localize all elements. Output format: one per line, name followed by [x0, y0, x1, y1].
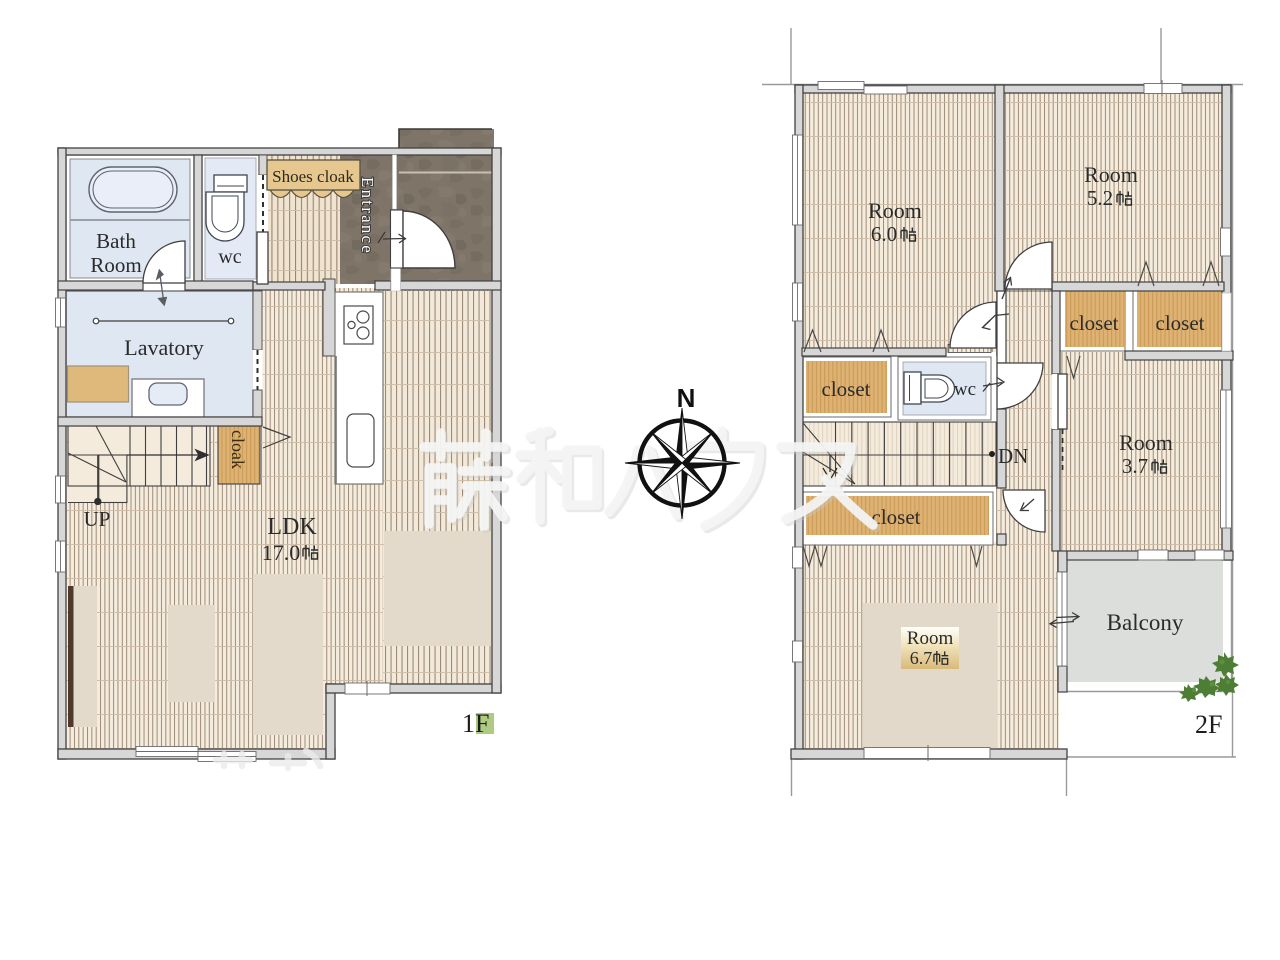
svg-text:2F: 2F	[1195, 710, 1222, 739]
svg-text:5.2: 5.2	[1087, 186, 1113, 210]
svg-text:Shoes cloak: Shoes cloak	[272, 167, 354, 186]
svg-text:3.7: 3.7	[1122, 454, 1148, 478]
svg-text:cloak: cloak	[228, 430, 248, 469]
svg-text:Balcony: Balcony	[1107, 610, 1184, 635]
svg-text:Entrance: Entrance	[358, 177, 377, 255]
svg-text:closet: closet	[1156, 311, 1205, 335]
svg-text:6.7: 6.7	[910, 648, 933, 668]
svg-text:UP: UP	[84, 507, 111, 531]
svg-text:wc: wc	[954, 379, 976, 400]
svg-text:Room: Room	[868, 198, 922, 223]
svg-text:Room: Room	[1084, 162, 1138, 187]
svg-text:Room: Room	[907, 628, 954, 649]
svg-text:17.0: 17.0	[262, 540, 301, 565]
svg-text:Room: Room	[90, 253, 141, 277]
svg-text:Bath: Bath	[96, 229, 136, 253]
svg-text:N: N	[677, 383, 696, 413]
svg-text:Room: Room	[1119, 430, 1173, 455]
svg-text:wc: wc	[218, 246, 241, 268]
svg-text:Lavatory: Lavatory	[124, 335, 203, 360]
svg-text:1F: 1F	[462, 709, 489, 738]
svg-text:6.0: 6.0	[871, 222, 897, 246]
svg-text:closet: closet	[822, 377, 871, 401]
svg-text:LDK: LDK	[267, 514, 317, 540]
svg-text:closet: closet	[1070, 311, 1119, 335]
svg-text:DN: DN	[998, 444, 1028, 468]
